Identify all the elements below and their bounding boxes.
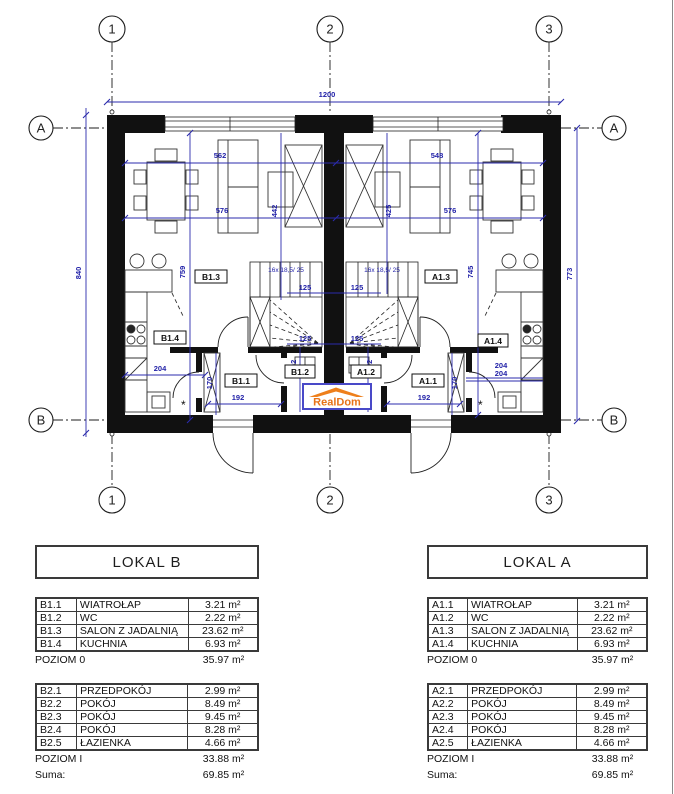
- stove-a: [523, 325, 531, 333]
- lokal-a-title: LOKAL A: [503, 554, 571, 571]
- cell-area: 4.66 m²: [577, 737, 647, 751]
- dim-stair: 125: [299, 283, 312, 292]
- cell-name: SALON Z JADALNIĄ: [76, 625, 188, 638]
- cell-name: POKÓJ: [77, 711, 188, 724]
- grid-label: 1: [108, 22, 115, 37]
- sum-label: Suma:: [35, 769, 188, 781]
- cell-area: 8.28 m²: [188, 724, 258, 737]
- table-row: A1.2 WC 2.22 m²: [428, 612, 647, 625]
- cell-name: POKÓJ: [77, 724, 188, 737]
- grid-label: 2: [326, 493, 333, 508]
- cell-area: 23.62 m²: [188, 625, 258, 638]
- entrance-door-a: [411, 433, 451, 473]
- fridge-a: [521, 358, 543, 380]
- total-label: POZIOM I: [35, 753, 188, 765]
- dim-left-height: 840: [74, 267, 83, 280]
- lokal-b-level0-table: B1.1 WIATROŁAP 3.21 m² B1.2 WC 2.22 m² B…: [35, 597, 259, 652]
- cell-area: 3.21 m²: [577, 598, 647, 612]
- table-row: B2.4 POKÓJ 8.28 m²: [36, 724, 258, 737]
- cell-area: 6.93 m²: [577, 638, 647, 652]
- cell-name: KUCHNIA: [467, 638, 577, 652]
- table-row: B1.1 WIATROŁAP 3.21 m²: [36, 598, 258, 612]
- cell-name: ŁAZIENKA: [468, 737, 577, 751]
- dim-hall-b: 192: [232, 393, 245, 402]
- cell-area: 23.62 m²: [577, 625, 647, 638]
- cell-area: 9.45 m²: [577, 711, 647, 724]
- room-label-a11: A1.1: [419, 376, 437, 386]
- cell-name: ŁAZIENKA: [77, 737, 188, 751]
- total-label: POZIOM 0: [427, 654, 577, 666]
- dim-a-w2: 576: [444, 206, 457, 215]
- room-label-a14: A1.4: [484, 336, 502, 346]
- cell-code: B2.5: [36, 737, 77, 751]
- lokal-b-title-box: LOKAL B: [35, 545, 259, 579]
- dim-b-depth: 759: [178, 266, 187, 279]
- lokal-a-sum: Suma: 69.85 m²: [427, 768, 648, 782]
- grid-label: 2: [326, 22, 333, 37]
- dim-a-depth: 745: [466, 266, 475, 279]
- party-wall: [324, 133, 344, 415]
- node-dot: [110, 110, 114, 114]
- cell-area: 9.45 m²: [188, 711, 258, 724]
- grid-label: 3: [545, 22, 552, 37]
- table-row: B1.4 KUCHNIA 6.93 m²: [36, 638, 258, 652]
- lokal-a-level1-table: A2.1 PRZEDPOKÓJ 2.99 m² A2.2 POKÓJ 8.49 …: [427, 683, 648, 751]
- lokal-a-summary: LOKAL A A1.1 WIATROŁAP 3.21 m² A1.2 WC 2…: [427, 545, 648, 782]
- cell-name: POKÓJ: [468, 698, 577, 711]
- grid-label: B: [37, 413, 46, 428]
- grid-label: B: [610, 413, 619, 428]
- lokal-b-level1-table: B2.1 PRZEDPOKÓJ 2.99 m² B2.2 POKÓJ 8.49 …: [35, 683, 259, 751]
- table-row: B1.2 WC 2.22 m²: [36, 612, 258, 625]
- kitchen-counter-a: [496, 270, 543, 292]
- cell-area: 3.21 m²: [188, 598, 258, 612]
- stove-b: [127, 325, 135, 333]
- cell-code: B2.1: [36, 684, 77, 698]
- table-row: A1.4 KUCHNIA 6.93 m²: [428, 638, 647, 652]
- room-label-a12: A1.2: [357, 367, 375, 377]
- grid-label: 3: [545, 493, 552, 508]
- cell-area: 8.49 m²: [188, 698, 258, 711]
- cell-name: WC: [76, 612, 188, 625]
- realdom-logo: RealDom: [303, 384, 371, 409]
- image-right-border: [672, 0, 673, 794]
- cell-name: POKÓJ: [468, 724, 577, 737]
- table-row: A2.1 PRZEDPOKÓJ 2.99 m²: [428, 684, 647, 698]
- cell-name: WC: [467, 612, 577, 625]
- dim-b-void: 442: [270, 205, 279, 218]
- table-row: B1.3 SALON Z JADALNIĄ 23.62 m²: [36, 625, 258, 638]
- dim-stair: 125: [351, 334, 364, 343]
- cell-name: PRZEDPOKÓJ: [468, 684, 577, 698]
- lokal-b-level0-total: POZIOM 0 35.97 m²: [35, 653, 259, 667]
- cell-area: 2.99 m²: [188, 684, 258, 698]
- table-row: A2.2 POKÓJ 8.49 m²: [428, 698, 647, 711]
- logo-text: RealDom: [313, 397, 361, 409]
- entrance-door-b: [213, 433, 253, 473]
- cell-code: A2.5: [428, 737, 468, 751]
- node-dot: [547, 110, 551, 114]
- grid-label: A: [610, 121, 619, 136]
- table-row: A2.3 POKÓJ 9.45 m²: [428, 711, 647, 724]
- cell-area: 2.22 m²: [188, 612, 258, 625]
- total-value: 35.97 m²: [188, 654, 259, 666]
- page: 1 2 3 1 2 3 A A B B: [0, 0, 674, 794]
- dim-right-height: 773: [565, 268, 574, 281]
- dim-stair: 125: [299, 334, 312, 343]
- cell-area: 6.93 m²: [188, 638, 258, 652]
- coffee-table-a: [375, 172, 400, 207]
- dim-b-w2: 576: [216, 206, 229, 215]
- cell-code: A1.4: [428, 638, 467, 652]
- table-row: B2.1 PRZEDPOKÓJ 2.99 m²: [36, 684, 258, 698]
- dim-hall-a: 192: [418, 393, 431, 402]
- dim-b-w1: 562: [214, 151, 227, 160]
- table-row: A1.3 SALON Z JADALNIĄ 23.62 m²: [428, 625, 647, 638]
- cell-code: A2.2: [428, 698, 468, 711]
- sum-value: 69.85 m²: [188, 769, 259, 781]
- cell-area: 4.66 m²: [188, 737, 258, 751]
- table-row: B2.2 POKÓJ 8.49 m²: [36, 698, 258, 711]
- cell-name: POKÓJ: [77, 698, 188, 711]
- lokal-a-title-box: LOKAL A: [427, 545, 648, 579]
- table-row: A1.1 WIATROŁAP 3.21 m²: [428, 598, 647, 612]
- cell-name: KUCHNIA: [76, 638, 188, 652]
- total-value: 33.88 m²: [577, 753, 648, 765]
- floor-plan: 1 2 3 1 2 3 A A B B: [0, 0, 674, 535]
- washer-a: [498, 392, 521, 412]
- cell-code: B2.2: [36, 698, 77, 711]
- room-label-a13: A1.3: [432, 272, 450, 282]
- coffee-table-b: [268, 172, 293, 207]
- cell-name: WIATROŁAP: [467, 598, 577, 612]
- dim-kitchen-a2: 204: [495, 369, 508, 378]
- lokal-b-sum: Suma: 69.85 m²: [35, 768, 259, 782]
- dim-ward-b: 170: [205, 377, 214, 390]
- cell-code: A1.3: [428, 625, 467, 638]
- lokal-a-level1-total: POZIOM I 33.88 m²: [427, 752, 648, 766]
- dining-table-a: [483, 162, 521, 220]
- cell-code: A1.1: [428, 598, 467, 612]
- cell-code: B1.3: [36, 625, 76, 638]
- lokal-a-level0-total: POZIOM 0 35.97 m²: [427, 653, 648, 667]
- cell-code: B1.1: [36, 598, 76, 612]
- grid-label: 1: [108, 493, 115, 508]
- room-label-b11: B1.1: [232, 376, 250, 386]
- dining-table-b: [147, 162, 185, 220]
- dim-stair: 125: [351, 283, 364, 292]
- table-row: B2.5 ŁAZIENKA 4.66 m²: [36, 737, 258, 751]
- cell-code: A2.1: [428, 684, 468, 698]
- radiator-star-b: *: [181, 398, 186, 412]
- grid-label: A: [37, 121, 46, 136]
- cell-area: 2.99 m²: [577, 684, 647, 698]
- cell-area: 8.49 m²: [577, 698, 647, 711]
- lokal-b-summary: LOKAL B B1.1 WIATROŁAP 3.21 m² B1.2 WC 2…: [35, 545, 259, 782]
- cell-area: 8.28 m²: [577, 724, 647, 737]
- total-value: 35.97 m²: [577, 654, 648, 666]
- lokal-b-title: LOKAL B: [113, 554, 182, 571]
- dim-a-w1: 548: [431, 151, 444, 160]
- stair-note-a: 16x 18,5/ 25: [364, 267, 400, 274]
- table-row: A2.5 ŁAZIENKA 4.66 m²: [428, 737, 647, 751]
- dim-ward-a: 170: [450, 377, 459, 390]
- cell-name: POKÓJ: [468, 711, 577, 724]
- cell-name: WIATROŁAP: [76, 598, 188, 612]
- sum-label: Suma:: [427, 769, 577, 781]
- cell-code: B1.4: [36, 638, 76, 652]
- dim-kitchen-b: 204: [154, 364, 167, 373]
- stair-note-b: 16x 18,5/ 25: [268, 267, 304, 274]
- cell-code: B1.2: [36, 612, 76, 625]
- total-label: POZIOM I: [427, 753, 577, 765]
- cell-code: B2.3: [36, 711, 77, 724]
- cell-name: SALON Z JADALNIĄ: [467, 625, 577, 638]
- lokal-b-level1-total: POZIOM I 33.88 m²: [35, 752, 259, 766]
- sum-value: 69.85 m²: [577, 769, 648, 781]
- total-value: 33.88 m²: [188, 753, 259, 765]
- cell-code: A2.3: [428, 711, 468, 724]
- cell-code: A1.2: [428, 612, 467, 625]
- dim-total-width: 1200: [319, 90, 336, 99]
- total-label: POZIOM 0: [35, 654, 188, 666]
- washer-b: [147, 392, 170, 412]
- table-row: B2.3 POKÓJ 9.45 m²: [36, 711, 258, 724]
- lokal-a-level0-table: A1.1 WIATROŁAP 3.21 m² A1.2 WC 2.22 m² A…: [427, 597, 648, 652]
- cell-name: PRZEDPOKÓJ: [77, 684, 188, 698]
- cell-code: B2.4: [36, 724, 77, 737]
- room-label-b13: B1.3: [202, 272, 220, 282]
- table-row: A2.4 POKÓJ 8.28 m²: [428, 724, 647, 737]
- fridge-b: [125, 358, 147, 380]
- cell-code: A2.4: [428, 724, 468, 737]
- dim-a-void: 425: [384, 205, 393, 218]
- radiator-star-a: *: [478, 398, 483, 412]
- cell-area: 2.22 m²: [577, 612, 647, 625]
- kitchen-counter-b: [125, 270, 172, 292]
- room-label-b12: B1.2: [291, 367, 309, 377]
- room-label-b14: B1.4: [161, 333, 179, 343]
